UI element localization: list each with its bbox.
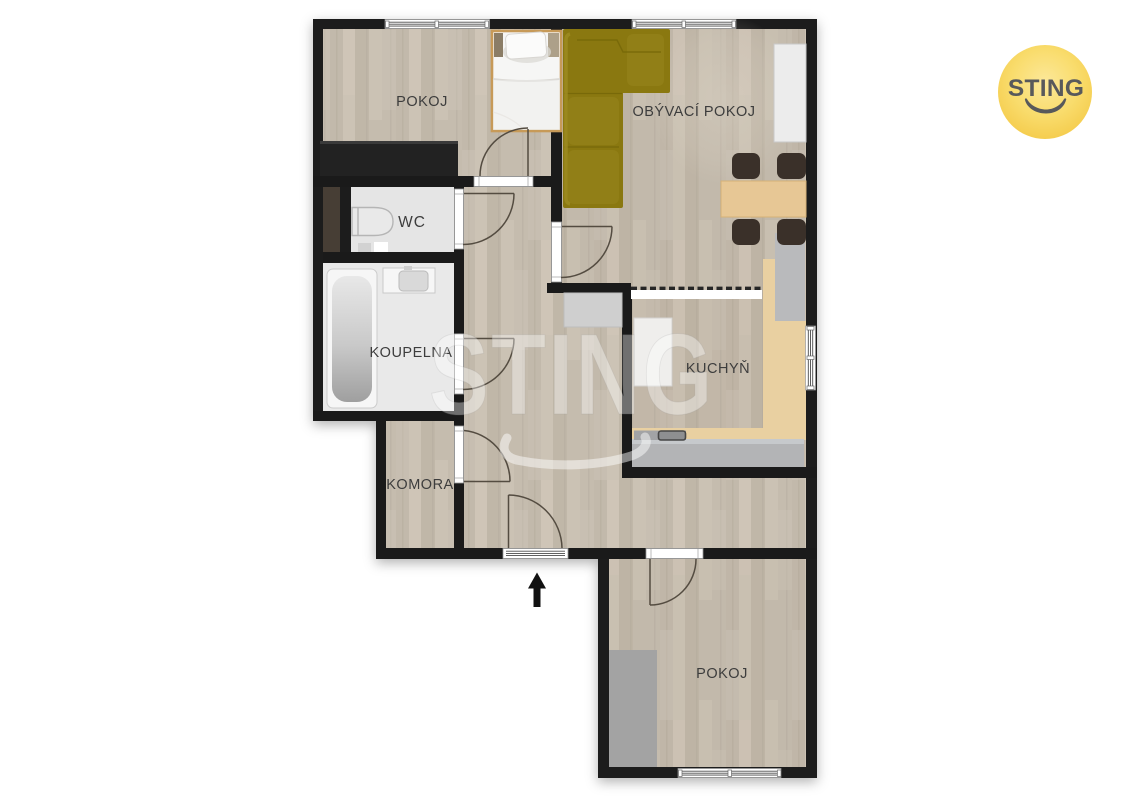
svg-text:STING: STING [429, 310, 715, 438]
svg-text:OBÝVACÍ POKOJ: OBÝVACÍ POKOJ [632, 103, 755, 120]
svg-text:POKOJ: POKOJ [696, 666, 748, 682]
svg-text:POKOJ: POKOJ [396, 94, 448, 110]
svg-text:STING: STING [1008, 75, 1084, 102]
svg-text:WC: WC [398, 214, 426, 231]
svg-text:KOMORA: KOMORA [386, 477, 453, 493]
